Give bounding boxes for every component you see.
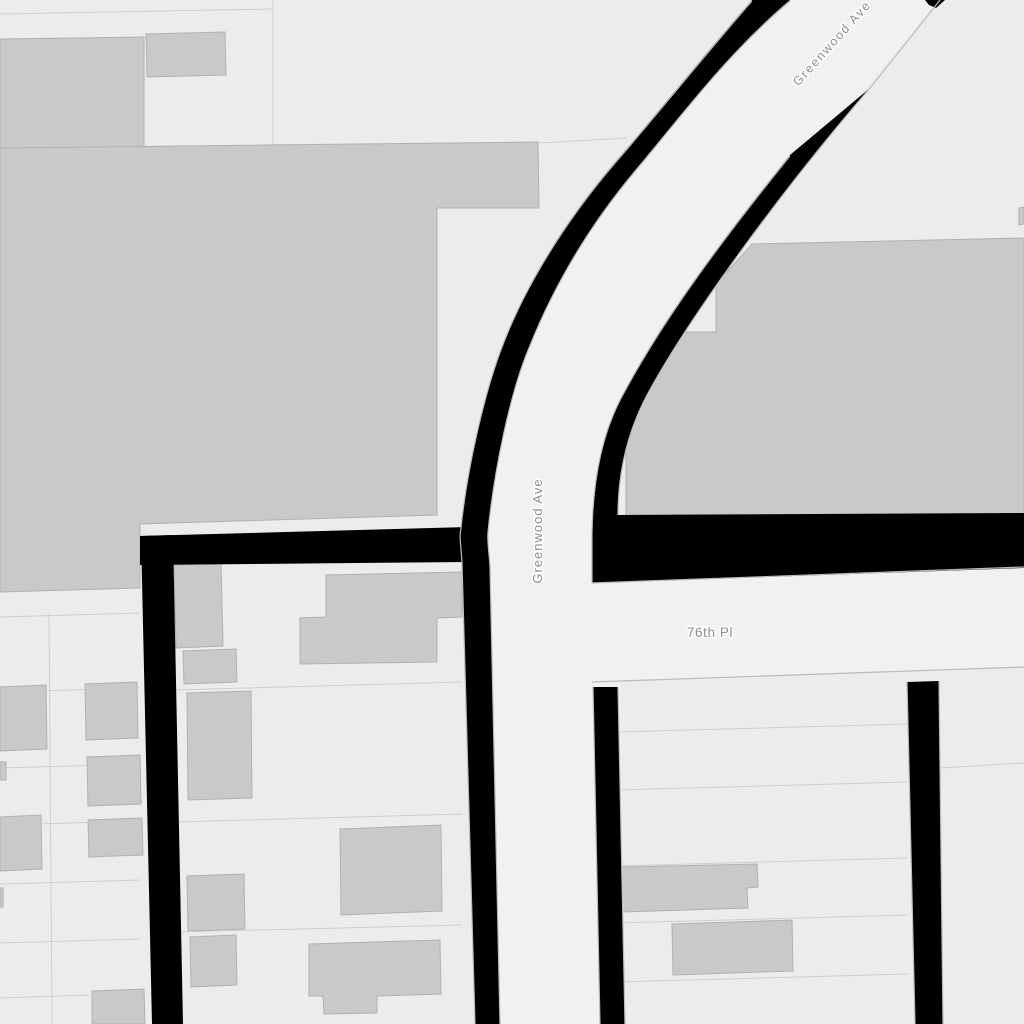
building (309, 940, 441, 1014)
building (340, 825, 442, 915)
building (183, 649, 237, 684)
building (1019, 207, 1024, 225)
map-svg[interactable]: Greenwood Ave Greenwood Ave 76th Pl (0, 0, 1024, 1024)
building (190, 935, 237, 987)
building (187, 874, 245, 931)
building (87, 755, 141, 806)
building (0, 142, 539, 592)
building (622, 864, 758, 912)
building (0, 888, 3, 907)
alley-west-horizontal (140, 527, 470, 565)
building (0, 37, 144, 149)
building (174, 563, 223, 648)
building (300, 572, 462, 664)
alley-south-right (907, 681, 943, 1024)
building (187, 691, 252, 800)
building (88, 818, 143, 857)
building (672, 920, 793, 975)
building (92, 989, 145, 1024)
building (0, 815, 42, 871)
building (0, 685, 47, 751)
street-label-greenwood-ave-vertical: Greenwood Ave (530, 478, 545, 583)
road-76th-pl (592, 567, 1024, 682)
building (146, 32, 226, 77)
street-label-76th-pl: 76th Pl (687, 625, 733, 640)
building (85, 682, 138, 740)
map-canvas[interactable]: Greenwood Ave Greenwood Ave 76th Pl (0, 0, 1024, 1024)
building (0, 762, 6, 780)
